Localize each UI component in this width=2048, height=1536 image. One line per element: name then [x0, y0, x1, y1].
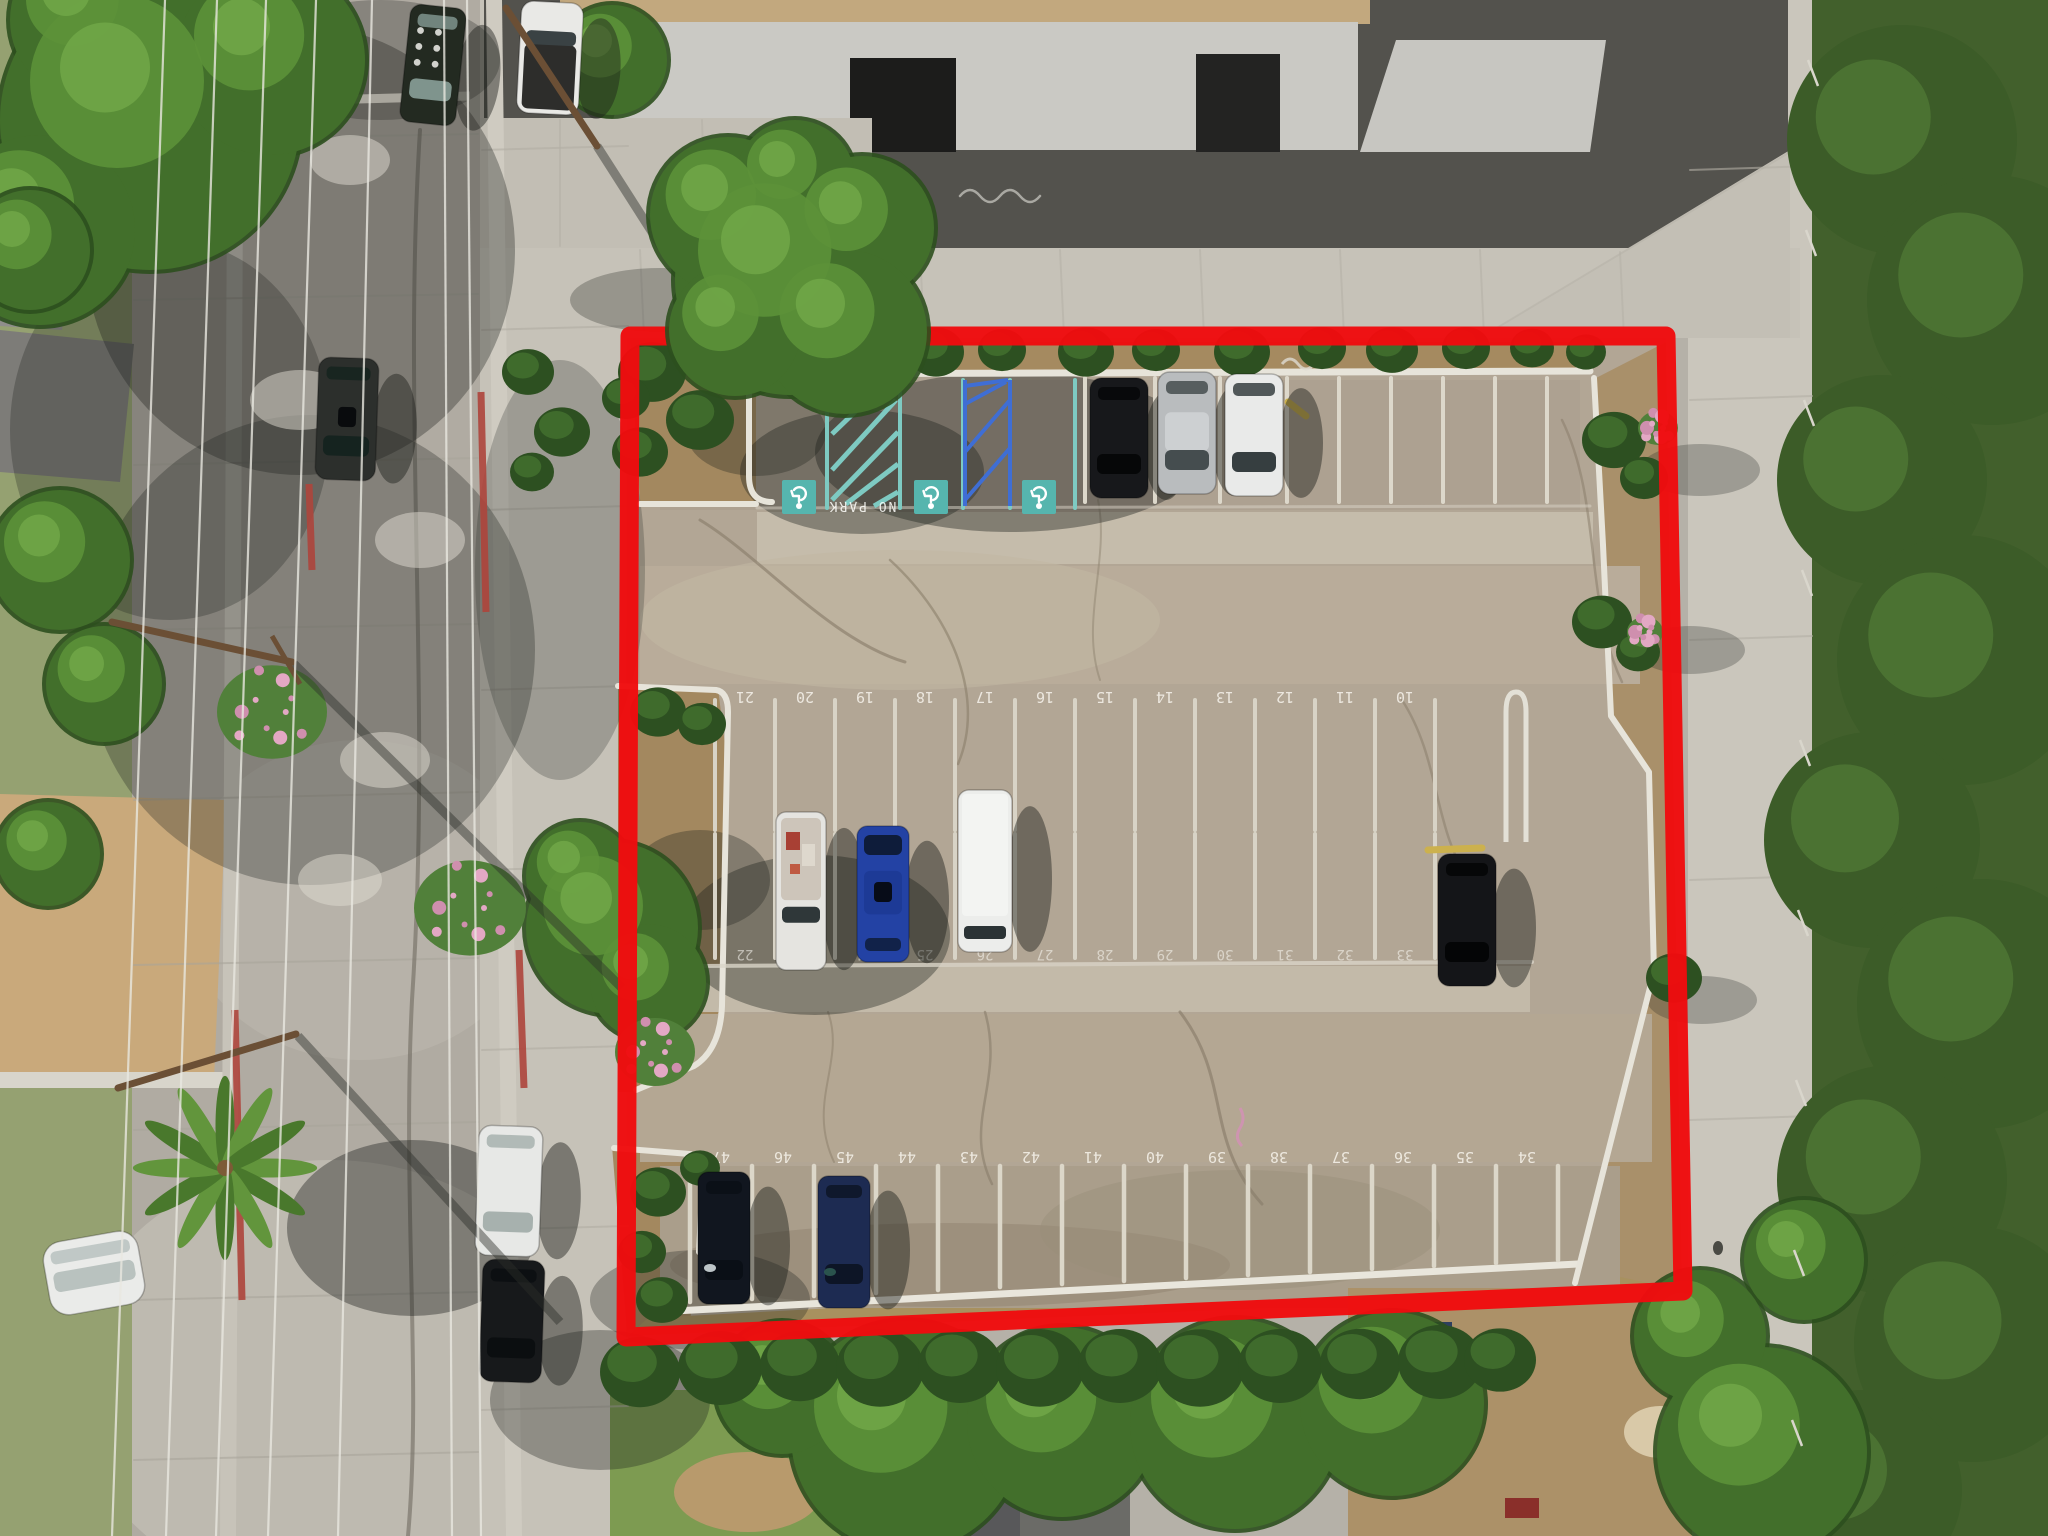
lot-boxtruck-white: [958, 790, 1052, 952]
rear-window: [706, 1181, 742, 1194]
rear-window: [1166, 381, 1208, 394]
windshield: [964, 926, 1006, 939]
building-parapet: [560, 0, 1370, 24]
lot-car-black-bottom: [698, 1172, 790, 1305]
stall-number: 22: [737, 946, 754, 962]
stall-number: 40: [1146, 1148, 1164, 1166]
stall-number: 31: [1277, 946, 1294, 962]
car-shadow: [746, 1187, 790, 1306]
stall-number: 10: [1396, 688, 1414, 706]
stall-number: 17: [976, 688, 994, 706]
lot-pickup-white-mid: [776, 812, 866, 970]
stall-number: 18: [916, 688, 934, 706]
car-shadow: [905, 841, 949, 963]
windshield: [1097, 454, 1141, 474]
sunroof: [874, 882, 892, 902]
stall-number: 42: [1022, 1148, 1040, 1166]
stall-number: 36: [1394, 1148, 1412, 1166]
stall-number: 38: [1270, 1148, 1288, 1166]
car-shadow: [1008, 806, 1052, 952]
aerial-parking-lot-photo: NO PARK212019181716151413121110222324252…: [0, 0, 2048, 1536]
stall-number: 27: [1037, 946, 1054, 962]
windshield: [782, 907, 820, 923]
lot-car-navy-bottom: [818, 1176, 910, 1309]
stall-number: 28: [1097, 946, 1114, 962]
stall-number: 13: [1216, 688, 1234, 706]
stall-number: 39: [1208, 1148, 1226, 1166]
sun-dapple: [298, 854, 382, 906]
stall-number: 30: [1217, 946, 1234, 962]
building-roof-annex: [1360, 40, 1606, 152]
lot-sedan-blue-mid: [857, 826, 949, 963]
sun-glint: [704, 1264, 716, 1272]
stall-number: 12: [1276, 688, 1294, 706]
lower-aisle: [640, 1014, 1652, 1162]
street-car-white-corner: [40, 1228, 147, 1318]
box-roof: [962, 794, 1008, 916]
windshield: [1445, 942, 1489, 962]
wheel-stop: [1428, 848, 1482, 850]
stall-number: 33: [1397, 946, 1414, 962]
sun-dapple: [375, 512, 465, 568]
bed-cargo: [790, 864, 800, 874]
stall-number: 34: [1518, 1148, 1536, 1166]
bed-cargo: [786, 832, 800, 850]
lot-car-white-top: [1225, 374, 1323, 498]
stall-number: 11: [1336, 688, 1354, 706]
stall-number: 44: [898, 1148, 916, 1166]
car-shadow: [866, 1191, 910, 1310]
stall-number: 15: [1096, 688, 1114, 706]
windshield: [1165, 450, 1209, 470]
stall-number: 29: [1157, 946, 1174, 962]
building-courtyard-2: [1196, 54, 1280, 152]
bed-cargo: [802, 844, 815, 866]
lot-car-black-mid: [1438, 854, 1536, 987]
left-white-wall: [0, 1072, 228, 1088]
sunroof: [338, 407, 357, 428]
windshield: [483, 1211, 534, 1233]
stall-number: 35: [1456, 1148, 1474, 1166]
stall-number: 46: [774, 1148, 792, 1166]
rear-window: [1233, 383, 1275, 396]
car-roof: [1165, 412, 1209, 451]
stall-number: 20: [796, 688, 814, 706]
red-curb: [519, 950, 524, 1088]
stall-number: 41: [1084, 1148, 1102, 1166]
windshield: [1232, 452, 1276, 472]
stall-number: 19: [856, 688, 874, 706]
rear-window: [487, 1134, 535, 1149]
stall-number: 16: [1036, 688, 1054, 706]
scene-canvas: NO PARK212019181716151413121110222324252…: [0, 0, 2048, 1536]
street-car-white: [475, 1125, 584, 1260]
stall-number: 45: [836, 1148, 854, 1166]
red-curb: [309, 484, 312, 570]
rear-window: [865, 938, 901, 951]
path-debris: [1713, 1241, 1723, 1255]
rear-window: [1446, 863, 1488, 876]
stall-number: 32: [1337, 946, 1354, 962]
red-yard-object: [1505, 1498, 1539, 1518]
big-tree-top: [646, 116, 938, 418]
car-shadow: [1279, 388, 1323, 498]
stall-number: 37: [1332, 1148, 1350, 1166]
rear-window: [826, 1185, 862, 1198]
rear-window: [1098, 387, 1140, 400]
car-shadow: [1492, 869, 1536, 988]
no-parking-text: NO PARK: [828, 498, 897, 513]
windshield: [487, 1337, 536, 1359]
stall-number: 14: [1156, 688, 1174, 706]
red-curb: [481, 392, 486, 612]
stall-number: 21: [736, 688, 754, 706]
sun-glint: [824, 1268, 836, 1276]
windshield: [864, 835, 902, 855]
stall-number: 43: [960, 1148, 978, 1166]
